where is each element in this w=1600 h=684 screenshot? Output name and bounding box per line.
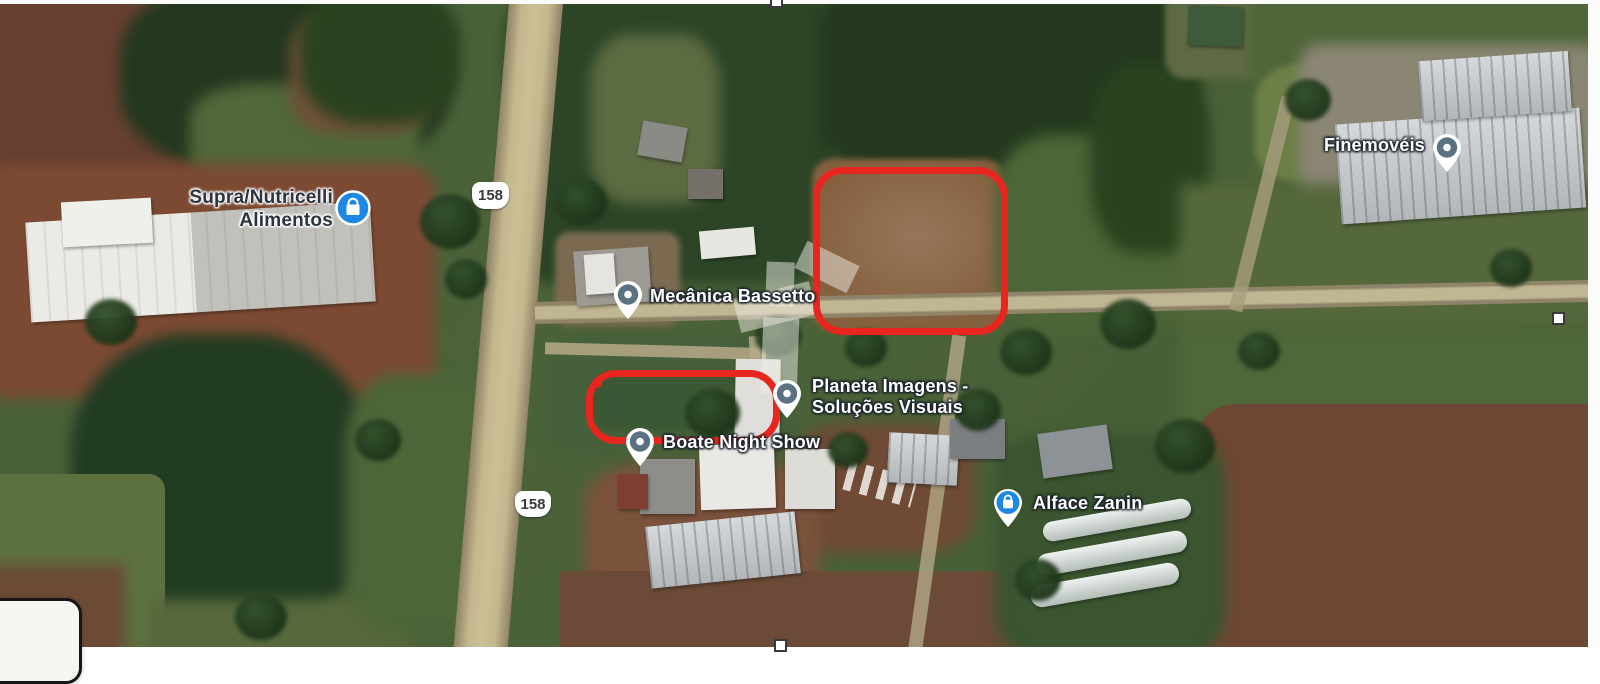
selection-handle-top[interactable] bbox=[770, 0, 783, 8]
building-boate-gray bbox=[640, 459, 695, 514]
place-pin-icon[interactable] bbox=[1432, 133, 1462, 173]
poi-supra-label-line1[interactable]: Supra/Nutricelli bbox=[189, 187, 333, 208]
place-pin-icon[interactable] bbox=[625, 427, 655, 467]
shopping-badge-icon[interactable] bbox=[335, 190, 371, 226]
road-br158 bbox=[449, 4, 566, 647]
poi-boate-label[interactable]: Boate Night Show bbox=[663, 432, 820, 453]
highlighted-lot-large[interactable] bbox=[813, 167, 1008, 335]
route-shield-158-north[interactable]: 158 bbox=[472, 182, 509, 209]
selection-handle-bottom[interactable] bbox=[774, 639, 787, 652]
route-shield-158-south[interactable]: 158 bbox=[515, 491, 551, 517]
poi-mecanica-label[interactable]: Mecânica Bassetto bbox=[650, 286, 815, 307]
overlay-card[interactable] bbox=[0, 598, 82, 684]
tree bbox=[1490, 249, 1532, 287]
building-white-shed bbox=[785, 449, 835, 509]
building-shed bbox=[699, 227, 756, 260]
building-house bbox=[1037, 424, 1113, 478]
poi-planeta-label[interactable]: Planeta Imagens - Soluções Visuais bbox=[812, 376, 968, 418]
building-mecanica-white bbox=[584, 253, 617, 295]
poi-supra[interactable]: Supra/Nutricelli Alimentos bbox=[148, 186, 333, 232]
building-center-warehouse bbox=[887, 432, 960, 486]
tree bbox=[828, 432, 868, 468]
poi-planeta-label-line1[interactable]: Planeta Imagens - bbox=[812, 376, 968, 396]
selection-handle-right[interactable] bbox=[1552, 312, 1565, 325]
poi-planeta-label-line2[interactable]: Soluções Visuais bbox=[812, 397, 963, 417]
terrain-plowed-field bbox=[1195, 404, 1588, 647]
tree bbox=[420, 194, 480, 249]
place-pin-icon[interactable] bbox=[772, 379, 802, 419]
tree bbox=[1285, 79, 1331, 121]
tree bbox=[1015, 559, 1061, 601]
tree bbox=[555, 179, 607, 225]
building-house bbox=[688, 169, 723, 199]
terrain-plowed-field bbox=[560, 571, 1035, 647]
building-supra-annex bbox=[61, 198, 153, 248]
tree bbox=[1100, 299, 1156, 349]
tree bbox=[445, 259, 487, 299]
satellite-map[interactable]: Supra/Nutricelli Alimentos Mecânica Bass… bbox=[0, 4, 1588, 647]
tree bbox=[1238, 332, 1280, 370]
building-house bbox=[637, 120, 687, 162]
poi-finemoveis-label[interactable]: Finemovéis bbox=[1290, 135, 1425, 156]
building-green-roof-house bbox=[1187, 5, 1243, 47]
shopping-pin-icon[interactable] bbox=[993, 488, 1023, 528]
terrain-forest bbox=[300, 4, 460, 124]
canvas-margin-top bbox=[0, 0, 1600, 4]
building-finemoveis-annex bbox=[1418, 51, 1572, 121]
building-red-shed bbox=[618, 474, 648, 509]
place-pin-icon[interactable] bbox=[613, 280, 643, 320]
tree bbox=[235, 594, 287, 640]
tree bbox=[85, 299, 137, 345]
tree bbox=[1155, 419, 1215, 473]
tree bbox=[355, 419, 401, 461]
tree bbox=[1000, 329, 1052, 375]
poi-alface-label[interactable]: Alface Zanin bbox=[1033, 493, 1142, 514]
canvas-margin-right bbox=[1588, 0, 1600, 647]
poi-supra-label-line2[interactable]: Alimentos bbox=[239, 210, 333, 231]
annotation-stroke-dot bbox=[592, 378, 602, 388]
